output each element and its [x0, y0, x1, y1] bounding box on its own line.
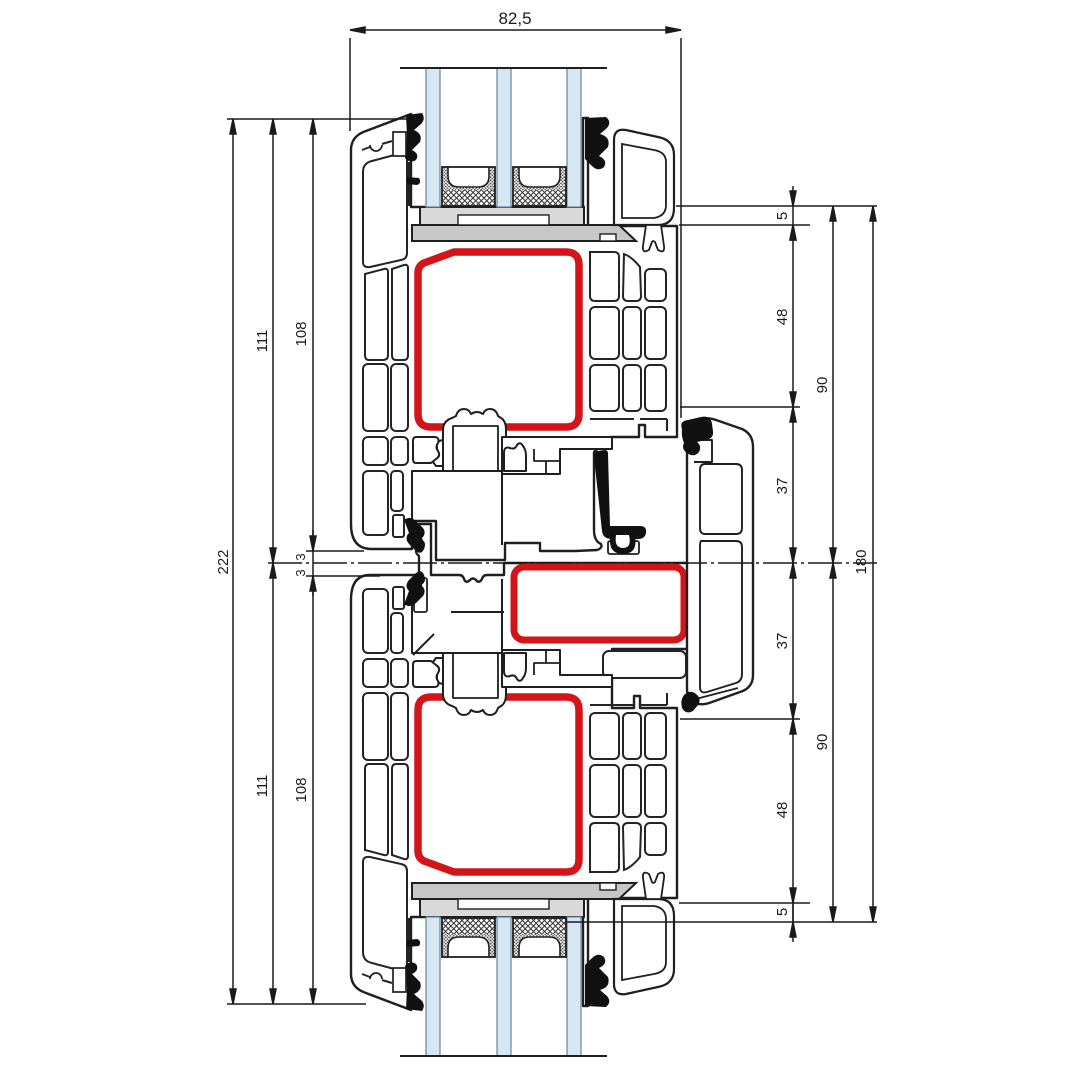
svg-text:37: 37	[774, 478, 791, 495]
svg-text:90: 90	[814, 377, 831, 394]
svg-text:90: 90	[814, 734, 831, 751]
svg-text:3: 3	[293, 553, 308, 560]
svg-text:111: 111	[254, 775, 271, 798]
svg-text:111: 111	[254, 330, 271, 353]
svg-text:48: 48	[774, 309, 791, 326]
svg-text:5: 5	[774, 908, 791, 916]
svg-text:222: 222	[215, 549, 232, 574]
svg-text:37: 37	[774, 633, 791, 650]
svg-text:180: 180	[853, 549, 870, 574]
svg-text:82,5: 82,5	[498, 9, 531, 28]
svg-text:108: 108	[293, 321, 310, 346]
svg-text:3: 3	[293, 569, 308, 576]
svg-text:48: 48	[774, 802, 791, 819]
svg-text:108: 108	[293, 777, 310, 802]
svg-text:5: 5	[774, 212, 791, 220]
